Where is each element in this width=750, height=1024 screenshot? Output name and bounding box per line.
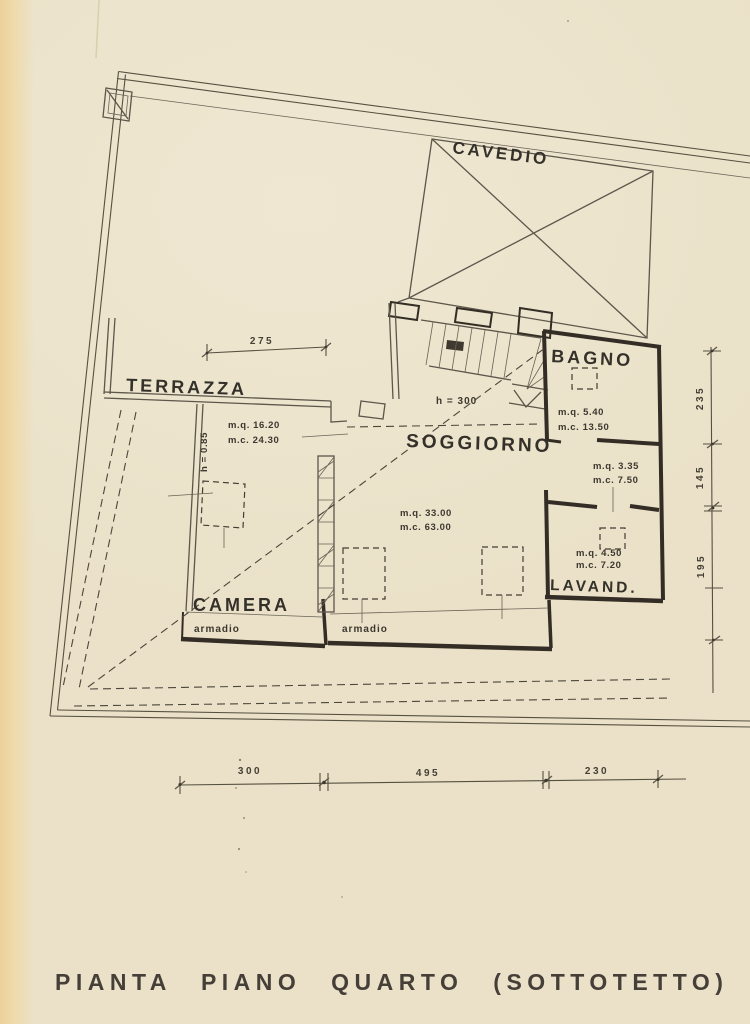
terrazza-height-note: h = 0.85 xyxy=(199,432,210,472)
hatched-partition-strip xyxy=(318,456,334,612)
soggiorno-volume-text: m.c. 63.00 xyxy=(400,522,451,533)
dimension-top: 275 xyxy=(202,336,331,361)
terrazza-area-text: m.q. 16.20 xyxy=(228,420,280,431)
camera-label: CAMERA xyxy=(193,595,290,615)
dimension-bottom-value-2: 495 xyxy=(416,768,440,779)
floor-plan-drawing: 275 235 145 195 300 495 230 CAVEDIO TERR… xyxy=(0,0,750,1024)
bagno-volume-text: m.c. 13.50 xyxy=(558,422,609,433)
soggiorno-closet-label: armadio xyxy=(342,624,388,635)
bagno-area-text: m.q. 5.40 xyxy=(558,407,604,418)
soggiorno-label: SOGGIORNO xyxy=(406,431,553,457)
terrazza-volume-text: m.c. 24.30 xyxy=(228,435,279,446)
dimension-top-value: 275 xyxy=(250,336,274,347)
dimension-right-value-3: 195 xyxy=(696,554,707,578)
drawing-title: PIANTA PIANO QUARTO (SOTTOTETTO) xyxy=(55,969,728,995)
lavanderia-label: LAVAND. xyxy=(550,577,638,597)
room-labels: CAVEDIO TERRAZZA SOGGIORNO BAGNO CAMERA … xyxy=(126,138,638,635)
camera-closet-label: armadio xyxy=(194,624,240,635)
dimension-right: 235 145 195 xyxy=(695,347,723,693)
bagno-label: BAGNO xyxy=(551,346,634,370)
area-annotations: m.q. 16.20 m.c. 24.30 m.q. 33.00 m.c. 63… xyxy=(199,396,639,571)
disimpegno-volume-text: m.c. 7.50 xyxy=(593,475,639,486)
scanned-floor-plan-page: 275 235 145 195 300 495 230 CAVEDIO TERR… xyxy=(0,0,750,1024)
terrazza-label: TERRAZZA xyxy=(126,375,248,399)
dimension-right-value-1: 235 xyxy=(695,386,706,410)
dimension-right-value-2: 145 xyxy=(695,465,706,489)
lavanderia-volume-text: m.c. 7.20 xyxy=(576,560,622,571)
dimension-bottom-value-1: 300 xyxy=(238,766,262,777)
dimension-bottom-value-3: 230 xyxy=(585,766,609,777)
lavanderia-area-text: m.q. 4.50 xyxy=(576,548,622,559)
dimension-bottom: 300 495 230 xyxy=(175,766,686,794)
cavedio-label: CAVEDIO xyxy=(452,138,551,169)
disimpegno-area-text: m.q. 3.35 xyxy=(593,461,639,472)
soggiorno-height-note: h = 300 xyxy=(436,396,477,407)
corner-column xyxy=(103,88,132,121)
soggiorno-area-text: m.q. 33.00 xyxy=(400,508,452,519)
